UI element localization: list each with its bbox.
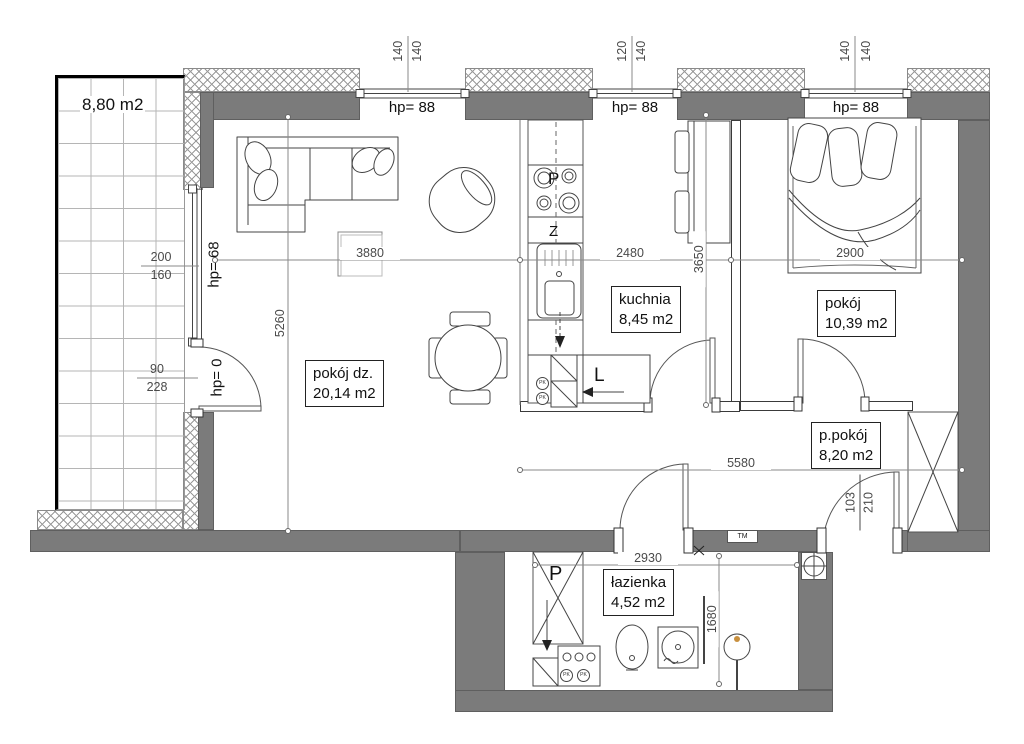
kitchen-desk (675, 121, 730, 243)
balcony-window-dim-b: 160 (140, 269, 182, 282)
dim-bedroom-width: 2900 (820, 247, 880, 260)
stove-symbol: P (548, 170, 559, 187)
balcony-terrace (55, 75, 185, 510)
window1-dim-a: 140 (392, 31, 405, 71)
wall-bottom-living (30, 530, 460, 552)
window3-sill-label: hp= 88 (816, 100, 896, 115)
balcony-area-label: 8,80 m2 (80, 96, 145, 113)
kitchen-label: kuchnia 8,45 m2 (611, 286, 681, 333)
balcony-window-dim-a: 200 (140, 251, 182, 264)
bathroom-name: łazienka (611, 573, 666, 593)
dim-bathroom-width: 2930 (618, 552, 678, 565)
entrance-door-dim-a: 103 (844, 475, 861, 531)
balcony-door-dim-b: 228 (136, 381, 178, 394)
dim-living-depth: 5260 (274, 295, 287, 351)
wall-left-upper (200, 92, 214, 188)
kitchen-area: 8,45 m2 (619, 310, 673, 330)
wall-right-bottom (905, 530, 990, 552)
window2-sill-label: hp= 88 (595, 100, 675, 115)
wall-bath-left (455, 552, 505, 712)
window3-dim-b: 140 (860, 31, 873, 71)
dim-hallway-width: 5580 (711, 457, 771, 470)
wall-bedroom-bottom-left (740, 401, 800, 411)
bathroom-area: 4,52 m2 (611, 593, 666, 613)
window2-frame (589, 89, 681, 98)
meter-niche (801, 552, 827, 580)
dining-set (429, 312, 507, 404)
wall-top-1 (203, 92, 360, 120)
insulation-top-right (907, 68, 990, 92)
window1-sill-label: hp= 88 (372, 100, 452, 115)
living-room-label: pokój dz. 20,14 m2 (305, 360, 384, 407)
kitchen-counter (528, 120, 583, 403)
tm-box: TM (727, 530, 758, 543)
dimension-lines (137, 36, 962, 684)
wall-top-4 (907, 92, 990, 120)
kitchen-cabinets (551, 355, 577, 407)
dim-living-width: 3880 (340, 247, 400, 260)
wall-left-lower (198, 412, 214, 530)
wall-top-3 (677, 92, 805, 120)
wall-bedroom-bottom-right (865, 401, 913, 411)
shower-symbol: P (549, 564, 562, 584)
entrance-door-dim: 103 210 (844, 475, 877, 531)
insulation-top-mid2 (677, 68, 805, 92)
sofa (237, 137, 398, 232)
kitchen-arrow (555, 312, 565, 348)
kitchen-door (644, 338, 720, 412)
window1-frame (356, 89, 469, 98)
hallway-name: p.pokój (819, 426, 873, 446)
bedroom-label: pokój 10,39 m2 (817, 290, 896, 337)
toilet (616, 625, 648, 670)
insulation-top-left (183, 68, 360, 92)
bedroom-area: 10,39 m2 (825, 314, 888, 334)
kitchen-name: kuchnia (619, 290, 673, 310)
kitchen-sink (537, 244, 581, 318)
vent-kitchen-1: PK (536, 377, 549, 390)
wall-kitchen-bottom-stub (716, 401, 740, 412)
bathroom-label: łazienka 4,52 m2 (603, 569, 674, 616)
dim-bathroom-depth: 1680 (706, 591, 719, 647)
floor-plan: 8,80 m2 pokój dz. 20,14 m2 kuchnia 8,45 … (0, 0, 1024, 744)
insulation-balcony-bottom (37, 510, 183, 530)
fridge-symbol: L (594, 366, 605, 385)
vent-bath-2: PK (577, 669, 590, 682)
window2-dim-b: 140 (635, 31, 648, 71)
living-room-name: pokój dz. (313, 364, 376, 384)
vent-kitchen-2: PK (536, 392, 549, 405)
washbasin (724, 634, 750, 690)
hallway-label: p.pokój 8,20 m2 (811, 422, 881, 469)
insulation-top-mid1 (465, 68, 593, 92)
wall-entrance-right (898, 530, 908, 552)
vent-bath-1: PK (560, 669, 573, 682)
dim-kitchen-depth: 3650 (693, 231, 706, 287)
wall-bath-bottom (455, 690, 833, 712)
bedroom-door (794, 339, 869, 411)
partition-kitchen-bedroom (731, 120, 741, 405)
window2-dim-a: 120 (616, 31, 629, 71)
wall-bath-top-left (460, 530, 620, 552)
window3-dim-a: 140 (839, 31, 852, 71)
window3-frame (801, 89, 911, 98)
wall-top-2 (465, 92, 593, 120)
window1-dim-b: 140 (411, 31, 424, 71)
balcony-door (191, 339, 261, 417)
armchair (418, 156, 506, 243)
hallway-area: 8,20 m2 (819, 446, 873, 466)
wall-right (958, 120, 990, 552)
fridge-counter (582, 355, 650, 403)
entrance-door-dim-b: 210 (861, 475, 877, 531)
balcony-window-frame (189, 185, 202, 346)
wardrobe (908, 412, 958, 532)
bathroom-door (614, 464, 693, 553)
balcony-door-dim-a: 90 (136, 363, 178, 376)
living-room-area: 20,14 m2 (313, 384, 376, 404)
sink-symbol: Z (549, 224, 558, 239)
washing-machine (658, 627, 698, 668)
balcony-window-sill-label: hp= 68 (207, 237, 222, 293)
balcony-door-sill-label: hp= 0 (210, 350, 225, 406)
bedroom-name: pokój (825, 294, 888, 314)
dim-kitchen-width: 2480 (600, 247, 660, 260)
